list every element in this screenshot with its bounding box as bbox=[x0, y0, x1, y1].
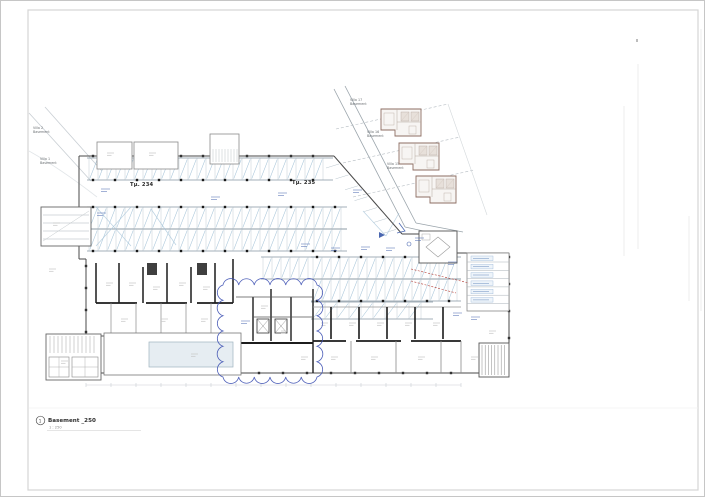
sheet-border bbox=[28, 10, 698, 490]
area-label-234: Τμ. 234 bbox=[130, 182, 154, 188]
villa-1-sublabel: Basement bbox=[40, 161, 57, 165]
drawing-sheet: Τμ. 234 Τμ. 235 Villa 2 Basement Villa 1… bbox=[0, 0, 705, 497]
villa-2-sublabel: Basement bbox=[33, 130, 50, 134]
view-scale: 1 : 250 bbox=[49, 426, 62, 430]
view-number: 1 bbox=[39, 418, 42, 423]
villa-15-sublabel: Basement bbox=[387, 166, 404, 170]
villa-16-sublabel: Basement bbox=[367, 134, 384, 138]
area-label-235: Τμ. 235 bbox=[292, 180, 316, 186]
villa-17-sublabel: Basement bbox=[350, 102, 367, 106]
floor-plan-canvas[interactable]: Τμ. 234 Τμ. 235 Villa 2 Basement Villa 1… bbox=[1, 1, 705, 497]
view-title: Basement _250 bbox=[48, 418, 96, 424]
